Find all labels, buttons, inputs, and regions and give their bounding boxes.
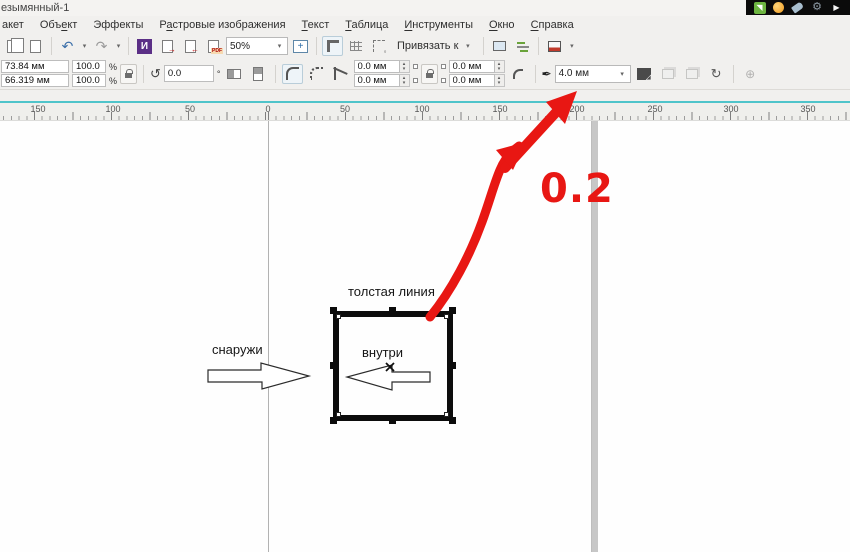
corner-lock-button[interactable] [421, 64, 438, 84]
corner-link-icon [413, 64, 418, 69]
corner-node[interactable] [444, 314, 449, 319]
lock-icon [125, 73, 132, 78]
scale-x-input[interactable] [72, 60, 106, 73]
toolbar-gap [0, 90, 850, 101]
overlay-strip: ◥ ⚙ ▶ [746, 0, 850, 15]
redo-dropdown-chevron-down-icon[interactable]: ▾ [114, 42, 123, 50]
redo-button[interactable]: ↷ [91, 36, 112, 56]
propbar-separator [275, 65, 276, 83]
toolbar-separator [51, 37, 52, 55]
spinner[interactable]: ▴▾ [495, 60, 505, 73]
selection-handle-bottom-middle[interactable] [389, 417, 396, 424]
duplicate-properties-button[interactable] [682, 64, 703, 84]
circular-arrows-icon: ↻ [711, 66, 722, 82]
window-titlebar: езымянный-1 ◥ ⚙ ▶ [0, 0, 850, 16]
menu-item-window[interactable]: Окно [481, 17, 523, 33]
selection-handle-top-right[interactable] [449, 307, 456, 314]
corner-scallop-button[interactable] [306, 64, 327, 84]
ruler-major-ticks [0, 112, 850, 120]
corner-chamfer-button[interactable] [330, 64, 351, 84]
export-button[interactable]: ← [180, 36, 201, 56]
propbar-separator [143, 65, 144, 83]
window-title: езымянный-1 [1, 2, 69, 14]
layers-icon [662, 69, 674, 79]
corner-link-icon [441, 64, 446, 69]
corner-round-button[interactable] [282, 64, 303, 84]
flip-horizontal-button[interactable] [224, 64, 245, 84]
corner-node[interactable] [336, 412, 341, 417]
rotate-icon: ↺ [150, 66, 161, 82]
menu-item-object[interactable]: Объект [32, 17, 85, 33]
grid-toggle-button[interactable] [345, 36, 366, 56]
welcome-screen-button[interactable] [489, 36, 510, 56]
selected-rectangle[interactable] [333, 311, 453, 421]
horizontal-ruler[interactable]: 150 100 50 0 50 100 150 200 250 300 350 [0, 103, 850, 121]
selection-handle-top-middle[interactable] [389, 307, 396, 314]
corner-radius-bl-input[interactable] [354, 74, 400, 87]
corner-link-icon [413, 78, 418, 83]
chamfer-corner-icon [334, 67, 347, 80]
menu-item-table[interactable]: Таблица [337, 17, 396, 33]
target-plus-icon: ⊕ [745, 67, 755, 81]
corner-radius-br-input[interactable] [449, 74, 495, 87]
rulers-toggle-button[interactable] [322, 36, 343, 56]
layers-icon [686, 69, 698, 79]
fullscreen-preview-button[interactable]: + [290, 36, 311, 56]
toolbar-separator [483, 37, 484, 55]
snap-to-button[interactable]: Привязать к ▾ [391, 38, 478, 54]
grid-icon [350, 41, 362, 51]
monitor-icon [493, 41, 506, 51]
relative-corner-scaling-button[interactable] [508, 64, 529, 84]
corner-link-icon [441, 78, 446, 83]
standard-toolbar: ↶ ▾ ↷ ▾ И → ← PDF 50% ▾ + Привязать к ▾ … [0, 34, 850, 58]
menu-item-text[interactable]: Текст [294, 17, 338, 33]
outline-pen-icon: ✒ [542, 67, 552, 81]
flip-vertical-icon [253, 67, 263, 81]
copy-properties-button[interactable] [658, 64, 679, 84]
content-search-button[interactable]: И [134, 36, 155, 56]
page-left-edge [268, 121, 269, 552]
menu-item-bitmaps[interactable]: Растровые изображения [151, 17, 293, 33]
outline-width-value: 4.0 мм [559, 68, 614, 79]
property-bar: % % ↺ ° ▴▾ ▴▾ ▴▾ ▴▾ ✒ 4.0 мм ▾ [0, 58, 850, 90]
propbar-separator [733, 65, 734, 83]
corner-node[interactable] [336, 314, 341, 319]
copy-button[interactable] [2, 36, 23, 56]
spinner[interactable]: ▴▾ [400, 74, 410, 87]
launcher-button[interactable] [544, 36, 565, 56]
object-y-input[interactable] [1, 74, 69, 87]
label-outside[interactable]: снаружи [212, 342, 263, 357]
tag-icon-wrap[interactable] [792, 2, 804, 14]
menu-item-help[interactable]: Справка [523, 17, 582, 33]
corner-radius-tr-input[interactable] [449, 60, 495, 73]
zoom-level-combobox[interactable]: 50% ▾ [226, 37, 288, 55]
drawing-canvas[interactable]: толстая линия снаружи внутри 0.2 [0, 121, 850, 552]
chevron-down-icon: ▾ [275, 42, 284, 50]
selection-handle-bottom-right[interactable] [449, 417, 456, 424]
percent-labels: % % [109, 60, 117, 87]
guidelines-toggle-button[interactable] [368, 36, 389, 56]
copy-icon [7, 40, 18, 53]
flip-horizontal-icon [227, 69, 241, 79]
selection-handle-middle-right[interactable] [449, 362, 456, 369]
options-button[interactable] [512, 36, 533, 56]
play-icon[interactable]: ▶ [831, 2, 843, 14]
scalloped-corner-icon [310, 67, 323, 80]
add-anchor-button[interactable]: ⊕ [740, 64, 761, 84]
rulers-icon [327, 40, 339, 52]
object-x-input[interactable] [1, 60, 69, 73]
menu-item-effects[interactable]: Эффекты [85, 17, 151, 33]
toolbar-separator [316, 37, 317, 55]
corner-link-icons [413, 64, 418, 83]
zoom-level-value: 50% [230, 41, 271, 52]
undo-dropdown-chevron-down-icon[interactable]: ▾ [80, 42, 89, 50]
chevron-down-icon: ▾ [463, 42, 472, 50]
paste-icon [30, 40, 41, 53]
spinner[interactable]: ▴▾ [400, 60, 410, 73]
scale-lock-button[interactable] [120, 64, 137, 84]
menu-item-tools[interactable]: Инструменты [396, 17, 481, 33]
menu-item-layout[interactable]: акет [0, 17, 32, 33]
flip-vertical-button[interactable] [248, 64, 269, 84]
undo-button[interactable]: ↶ [57, 36, 78, 56]
toolbar-separator [128, 37, 129, 55]
corner-radius-tl-input[interactable] [354, 60, 400, 73]
rotation-input[interactable] [164, 65, 214, 82]
chevron-down-icon: ▾ [618, 70, 627, 78]
corner-node[interactable] [444, 412, 449, 417]
toolbar-separator [538, 37, 539, 55]
publish-pdf-button[interactable]: PDF [203, 36, 224, 56]
symmetry-button[interactable]: ↻ [706, 64, 727, 84]
selection-handle-bottom-left[interactable] [330, 417, 337, 424]
lock-icon [426, 73, 433, 78]
round-corner-icon [286, 67, 299, 80]
selection-handle-top-left[interactable] [330, 307, 337, 314]
globe-icon[interactable] [773, 2, 784, 13]
corner-link-icons [441, 64, 446, 83]
wrap-text-icon [637, 68, 651, 80]
relative-corner-icon [513, 69, 523, 79]
propbar-separator [535, 65, 536, 83]
annotation-text: 0.2 [540, 166, 614, 212]
tag-icon [791, 1, 804, 13]
import-arrow-icon: → [168, 46, 176, 54]
paste-button[interactable] [25, 36, 46, 56]
guidelines-icon [373, 40, 385, 52]
scale-y-input[interactable] [72, 74, 106, 87]
corel-content-icon: И [137, 39, 152, 54]
launcher-chevron-down-icon[interactable]: ▾ [567, 42, 576, 50]
wrap-text-button[interactable] [634, 64, 655, 84]
selection-handle-middle-left[interactable] [330, 362, 337, 369]
snap-to-label: Привязать к [397, 40, 458, 52]
import-button[interactable]: → [157, 36, 178, 56]
gear-icon[interactable]: ⚙ [811, 2, 823, 14]
menubar: акет Объект Эффекты Растровые изображени… [0, 16, 850, 34]
launcher-icon [548, 41, 561, 52]
label-thick-line[interactable]: толстая линия [348, 284, 435, 299]
screen-capture-icon[interactable]: ◥ [754, 2, 766, 14]
export-arrow-icon: ← [191, 46, 199, 54]
fullscreen-preview-icon: + [293, 40, 308, 53]
spinner[interactable]: ▴▾ [495, 74, 505, 87]
outline-width-combobox[interactable]: 4.0 мм ▾ [555, 65, 631, 83]
degree-label: ° [217, 69, 221, 79]
options-sliders-icon [517, 40, 529, 52]
